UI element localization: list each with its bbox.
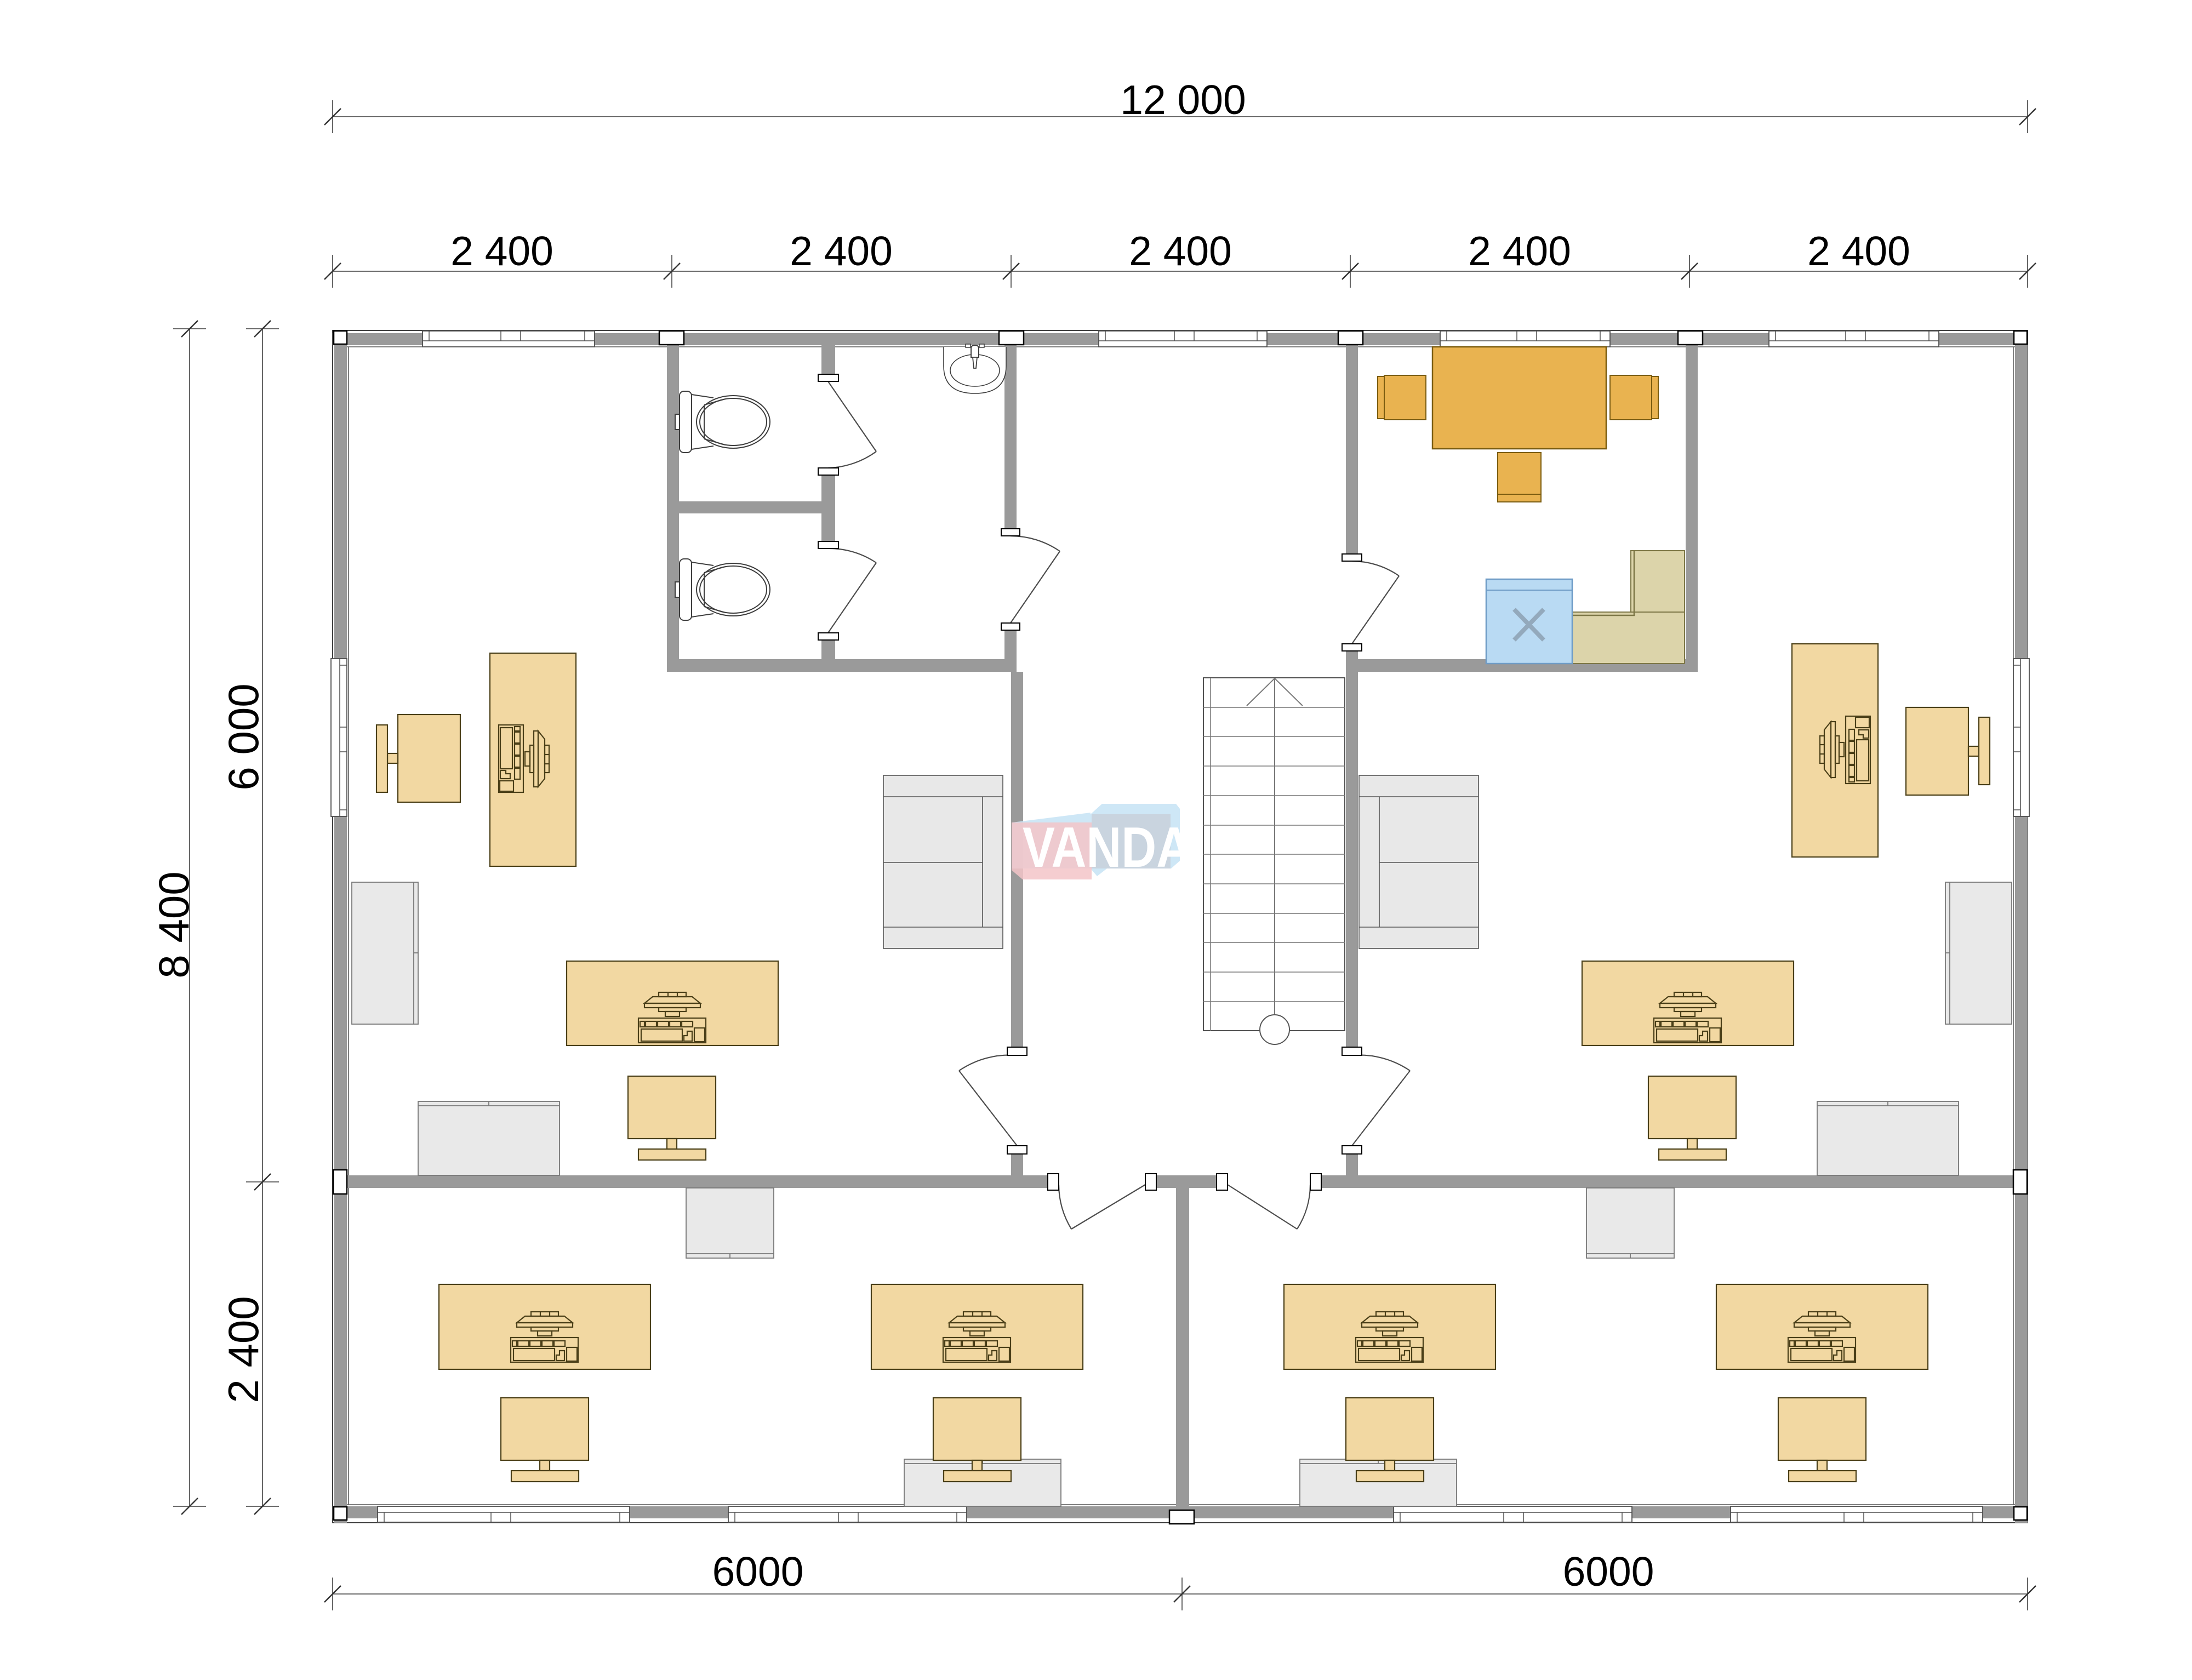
svg-text:8 400: 8 400 xyxy=(150,871,198,978)
svg-text:6000: 6000 xyxy=(1563,1548,1654,1595)
svg-text:2 400: 2 400 xyxy=(450,228,553,274)
svg-text:6 000: 6 000 xyxy=(219,683,267,790)
svg-text:2 400: 2 400 xyxy=(1468,228,1571,274)
svg-text:6000: 6000 xyxy=(712,1548,804,1595)
svg-text:2 400: 2 400 xyxy=(219,1296,267,1403)
svg-text:2 400: 2 400 xyxy=(1807,228,1910,274)
svg-text:12 000: 12 000 xyxy=(1120,77,1246,123)
svg-text:VANDA: VANDA xyxy=(1023,816,1191,879)
svg-text:2 400: 2 400 xyxy=(1129,228,1232,274)
svg-text:2 400: 2 400 xyxy=(790,228,893,274)
